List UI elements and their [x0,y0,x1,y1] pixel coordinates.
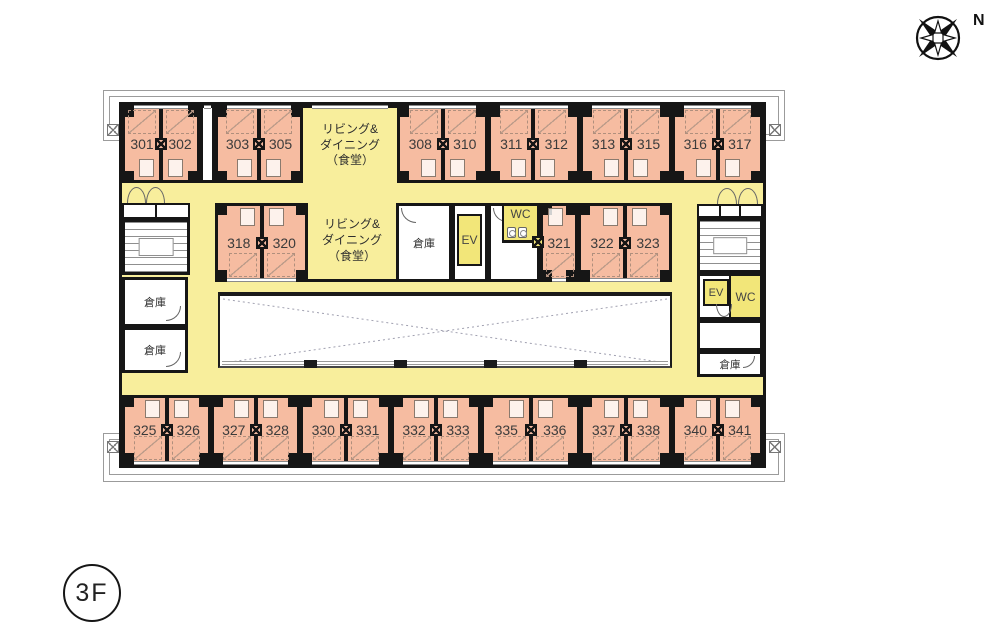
room-320: 320 [264,206,306,279]
window [227,278,296,282]
shaft-box-icon [155,138,167,150]
room-332: 332 [394,398,434,462]
living-dining-area-1: リビング& ダイニング （食堂） [303,105,397,183]
stairwell-left [122,219,190,275]
shaft-box-icon [340,424,352,436]
shaft-box-icon [161,424,173,436]
room-number: 333 [446,422,469,438]
room-330: 330 [303,398,344,462]
shaft-box-icon [620,138,632,150]
shaft-box-icon [532,236,544,248]
window [403,461,469,465]
storage-room-right: 倉庫 [697,351,763,377]
window [500,105,568,109]
void-cross-lines [220,296,670,366]
room-305: 305 [261,108,300,180]
room-318: 318 [218,206,260,279]
grid-marker-icon [769,124,781,136]
room-number: 317 [728,136,751,152]
shaft-box-icon [437,138,449,150]
room-317: 317 [720,108,761,180]
window [227,105,291,109]
room-number: 316 [684,136,707,152]
sink-icon [507,227,516,238]
shaft-box-icon [712,138,724,150]
room-336: 336 [533,398,578,462]
room-pair-322-323: 322 323 [578,203,672,282]
room-301: 301 [125,108,159,180]
room-pair-301-302: 301 302 [122,105,200,183]
column-stub [394,360,407,368]
living-dining-label: リビング& ダイニング （食堂） [303,108,397,183]
shaft-box-icon [250,424,262,436]
shaft-box-icon [430,424,442,436]
stair-landing [713,237,747,255]
compass-rose-icon [903,3,973,73]
storage-room-left-1: 倉庫 [122,277,188,327]
sink-icon [518,227,527,238]
window [493,461,568,465]
room-number: 331 [356,422,379,438]
toilet-room-right: WC [729,276,760,317]
utility-room-right [697,320,763,351]
living-dining-label: リビング& ダイニング （食堂） [308,203,396,279]
light-well [218,292,672,368]
room-number: 308 [409,136,432,152]
room-number: 321 [547,235,570,251]
room-337: 337 [583,398,624,462]
room-number: 336 [543,422,566,438]
storage-room-center: 倉庫 [396,203,452,282]
room-pair-332-333: 332 333 [391,395,481,465]
room-316: 316 [675,108,716,180]
room-number: 325 [133,422,156,438]
storage-label: 倉庫 [125,330,185,370]
shaft-box-icon [619,237,631,249]
room-number: 323 [636,235,659,251]
room-number: 302 [168,136,191,152]
room-number: 338 [637,422,660,438]
room-315: 315 [628,108,669,180]
shaft-box-icon [525,424,537,436]
window [592,461,660,465]
service-slot [200,105,215,183]
north-label: N [973,12,985,30]
floor-label: 3F [75,579,108,608]
toilet-label: WC [736,290,756,304]
window [684,461,751,465]
stair-landing [139,238,174,256]
room-302: 302 [163,108,197,180]
room-340: 340 [675,398,716,462]
column-stub [484,360,497,368]
window [312,461,379,465]
storage-label: 倉庫 [700,354,760,374]
room-322: 322 [581,206,623,279]
window [684,105,751,109]
stair-closets-left [122,203,190,219]
window [409,105,476,109]
room-number: 315 [637,136,660,152]
grid-marker-icon [769,441,781,453]
grid-marker-icon [107,124,119,136]
room-310: 310 [445,108,486,180]
storage-label: 倉庫 [399,206,449,279]
room-pair-316-317: 316 317 [672,105,763,183]
room-number: 322 [590,235,613,251]
column-stub [574,360,587,368]
room-312: 312 [535,108,577,180]
room-pair-340-341: 340 341 [672,395,763,465]
window [222,361,668,365]
column-stub [304,360,317,368]
room-number: 326 [177,422,200,438]
room-pair-311-312: 311 312 [488,105,580,183]
elevator-car: EV [457,214,482,266]
room-number: 305 [269,136,292,152]
room-326: 326 [169,398,209,462]
room-number: 301 [130,136,153,152]
room-338: 338 [628,398,669,462]
room-number: 303 [226,136,249,152]
room-333: 333 [438,398,478,462]
room-number: 312 [545,136,568,152]
room-number: 337 [592,422,615,438]
floor-badge: 3F [63,564,121,622]
elevator-shaft-center: EV [452,203,488,282]
window [204,105,211,109]
ev-wc-block-right: EV WC [697,273,763,320]
shaft-box-icon [620,424,632,436]
living-dining-area-2: リビング& ダイニング （食堂） [308,203,396,282]
room-328: 328 [258,398,298,462]
room-number: 318 [227,235,250,251]
window [590,278,660,282]
shaft-box-icon [712,424,724,436]
toilet-room-center: WC [502,206,537,243]
room-327: 327 [214,398,254,462]
shaft-box-icon [527,138,539,150]
room-335: 335 [484,398,529,462]
room-308: 308 [400,108,441,180]
elevator-label: EV [709,287,724,299]
storage-label: 倉庫 [125,280,185,324]
room-321: 321 [540,203,578,282]
room-number: 332 [402,422,425,438]
room-pair-308-310: 308 310 [397,105,488,183]
room-number: 341 [728,422,751,438]
room-pair-327-328: 327 328 [211,395,300,465]
floor-plan-canvas: 301 302 303 305 リビング& ダイニング （食堂） 308 310… [0,0,1000,644]
room-pair-318-320: 318 320 [215,203,308,282]
room-pair-337-338: 337 338 [580,395,672,465]
grid-marker-icon [107,441,119,453]
room-pair-313-315: 313 315 [580,105,672,183]
room-number: 313 [592,136,615,152]
shaft-box-icon [256,237,268,249]
stair-closets-right [697,204,763,218]
window [552,278,566,282]
window [134,105,188,109]
room-341: 341 [720,398,761,462]
room-number: 327 [222,422,245,438]
room-pair-303-305: 303 305 [215,105,303,183]
room-323: 323 [627,206,669,279]
room-303: 303 [218,108,257,180]
room-325: 325 [125,398,165,462]
room-pair-335-336: 335 336 [481,395,580,465]
room-331: 331 [348,398,389,462]
room-number: 330 [312,422,335,438]
window [134,461,199,465]
room-number: 335 [495,422,518,438]
room-number: 340 [684,422,707,438]
toilet-label: WC [504,207,537,221]
room-pair-325-326: 325 326 [122,395,211,465]
stairwell-right [697,218,763,273]
storage-room-left-2: 倉庫 [122,327,188,373]
elevator-car-right: EV [703,279,729,306]
room-313: 313 [583,108,624,180]
elevator-label: EV [461,233,477,247]
room-number: 328 [266,422,289,438]
room-number: 320 [273,235,296,251]
wc-vestibule: WC [488,203,540,282]
window [592,105,660,109]
room-321-interior: 321 [543,206,575,279]
room-pair-330-331: 330 331 [300,395,391,465]
window [223,461,288,465]
shaft-box-icon [253,138,265,150]
room-number: 310 [453,136,476,152]
room-311: 311 [491,108,531,180]
room-number: 311 [500,136,522,152]
